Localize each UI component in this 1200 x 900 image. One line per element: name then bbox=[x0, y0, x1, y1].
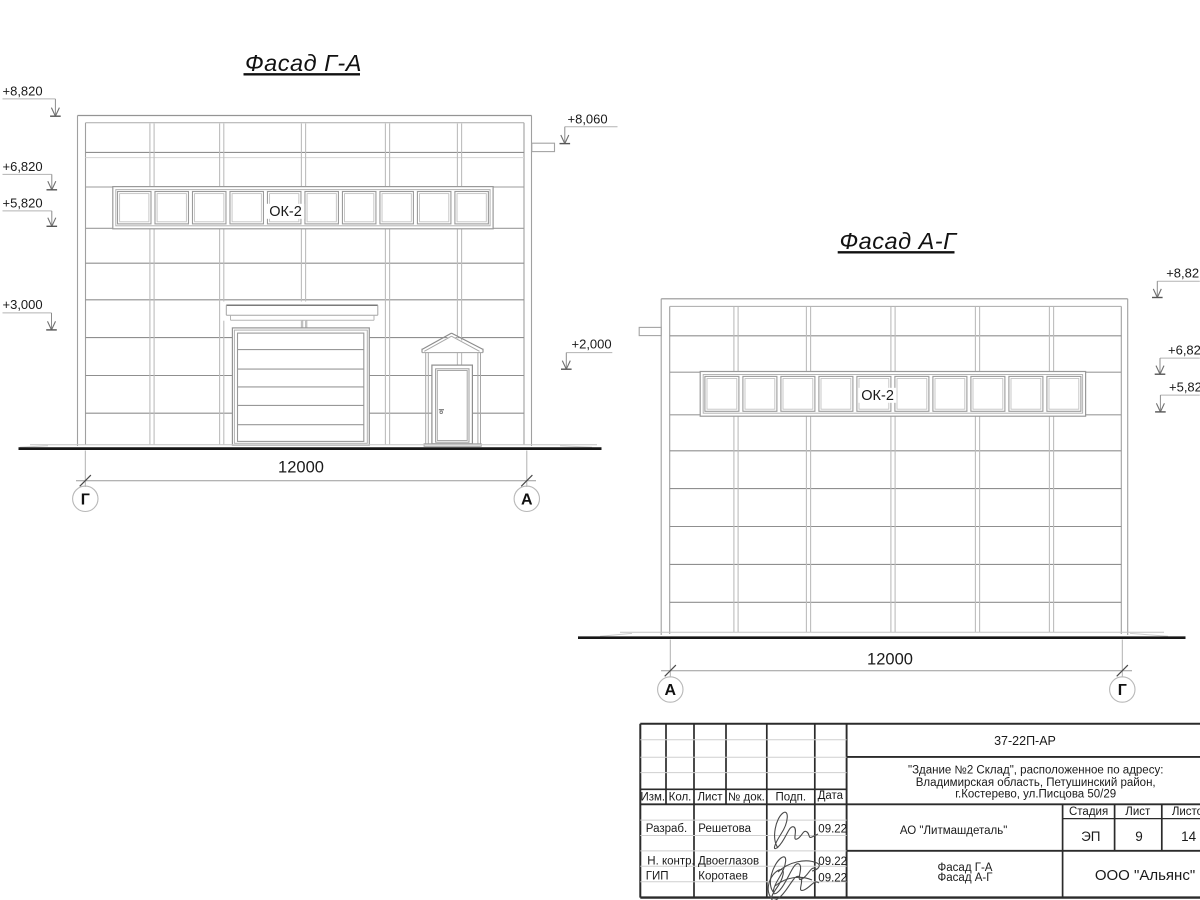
svg-text:+5,820: +5,820 bbox=[3, 195, 43, 210]
svg-text:+8,820: +8,820 bbox=[3, 83, 43, 98]
svg-text:Н. контр.: Н. контр. bbox=[647, 855, 694, 867]
svg-text:09.22: 09.22 bbox=[818, 872, 847, 884]
svg-text:Разраб.: Разраб. bbox=[646, 823, 687, 835]
svg-text:Решетова: Решетова bbox=[698, 823, 751, 835]
svg-text:+2,000: +2,000 bbox=[572, 336, 612, 351]
svg-text:Г: Г bbox=[1118, 682, 1127, 699]
svg-text:+5,82: +5,82 bbox=[1169, 379, 1200, 394]
svg-text:+8,060: +8,060 bbox=[568, 111, 608, 126]
svg-text:+6,82: +6,82 bbox=[1168, 342, 1200, 357]
svg-text:ГИП: ГИП bbox=[646, 870, 669, 882]
svg-text:Владимирская область, Петушинс: Владимирская область, Петушинский район, bbox=[916, 777, 1156, 789]
svg-text:12000: 12000 bbox=[867, 650, 913, 668]
svg-text:12000: 12000 bbox=[278, 459, 324, 477]
svg-text:г.Костерево, ул.Писцова 50/29: г.Костерево, ул.Писцова 50/29 bbox=[955, 789, 1116, 801]
svg-text:ЭП: ЭП bbox=[1081, 829, 1100, 844]
svg-text:09.22: 09.22 bbox=[818, 856, 847, 868]
svg-text:Двоеглазов: Двоеглазов bbox=[698, 856, 759, 868]
svg-text:+8,82: +8,82 bbox=[1166, 265, 1199, 280]
svg-text:14: 14 bbox=[1181, 829, 1197, 844]
svg-text:Фасад А-Г: Фасад А-Г bbox=[938, 872, 994, 884]
svg-text:АО "Литмашдеталь": АО "Литмашдеталь" bbox=[900, 825, 1007, 837]
svg-text:+6,820: +6,820 bbox=[3, 159, 43, 174]
svg-text:Стадия: Стадия bbox=[1069, 806, 1108, 818]
svg-text:"Здание №2 Склад", расположенн: "Здание №2 Склад", расположенное по адре… bbox=[908, 765, 1163, 777]
svg-text:+3,000: +3,000 bbox=[3, 297, 43, 312]
svg-text:Изм.: Изм. bbox=[640, 792, 665, 804]
svg-text:Подп.: Подп. bbox=[776, 792, 807, 804]
svg-text:ООО "Альянс": ООО "Альянс" bbox=[1095, 867, 1195, 884]
svg-text:9: 9 bbox=[1135, 829, 1143, 844]
svg-text:ОК-2: ОК-2 bbox=[861, 388, 894, 404]
svg-text:Листов: Листов bbox=[1172, 806, 1200, 818]
svg-text:Коротаев: Коротаев bbox=[698, 871, 748, 883]
svg-text:09.22: 09.22 bbox=[818, 823, 847, 835]
svg-text:Лист: Лист bbox=[1125, 806, 1151, 818]
svg-text:А: А bbox=[665, 682, 677, 699]
svg-text:Г: Г bbox=[81, 491, 90, 508]
svg-text:Фасад А-Г: Фасад А-Г bbox=[840, 228, 959, 254]
svg-text:Кол.: Кол. bbox=[669, 792, 692, 804]
svg-text:№ док.: № док. bbox=[728, 792, 765, 804]
svg-text:Дата: Дата bbox=[818, 790, 844, 802]
svg-text:Фасад Г-А: Фасад Г-А bbox=[245, 50, 362, 76]
svg-text:А: А bbox=[521, 491, 533, 508]
svg-text:ОК-2: ОК-2 bbox=[269, 204, 302, 220]
svg-text:Лист: Лист bbox=[698, 792, 724, 804]
svg-text:37-22П-АР: 37-22П-АР bbox=[994, 734, 1056, 748]
